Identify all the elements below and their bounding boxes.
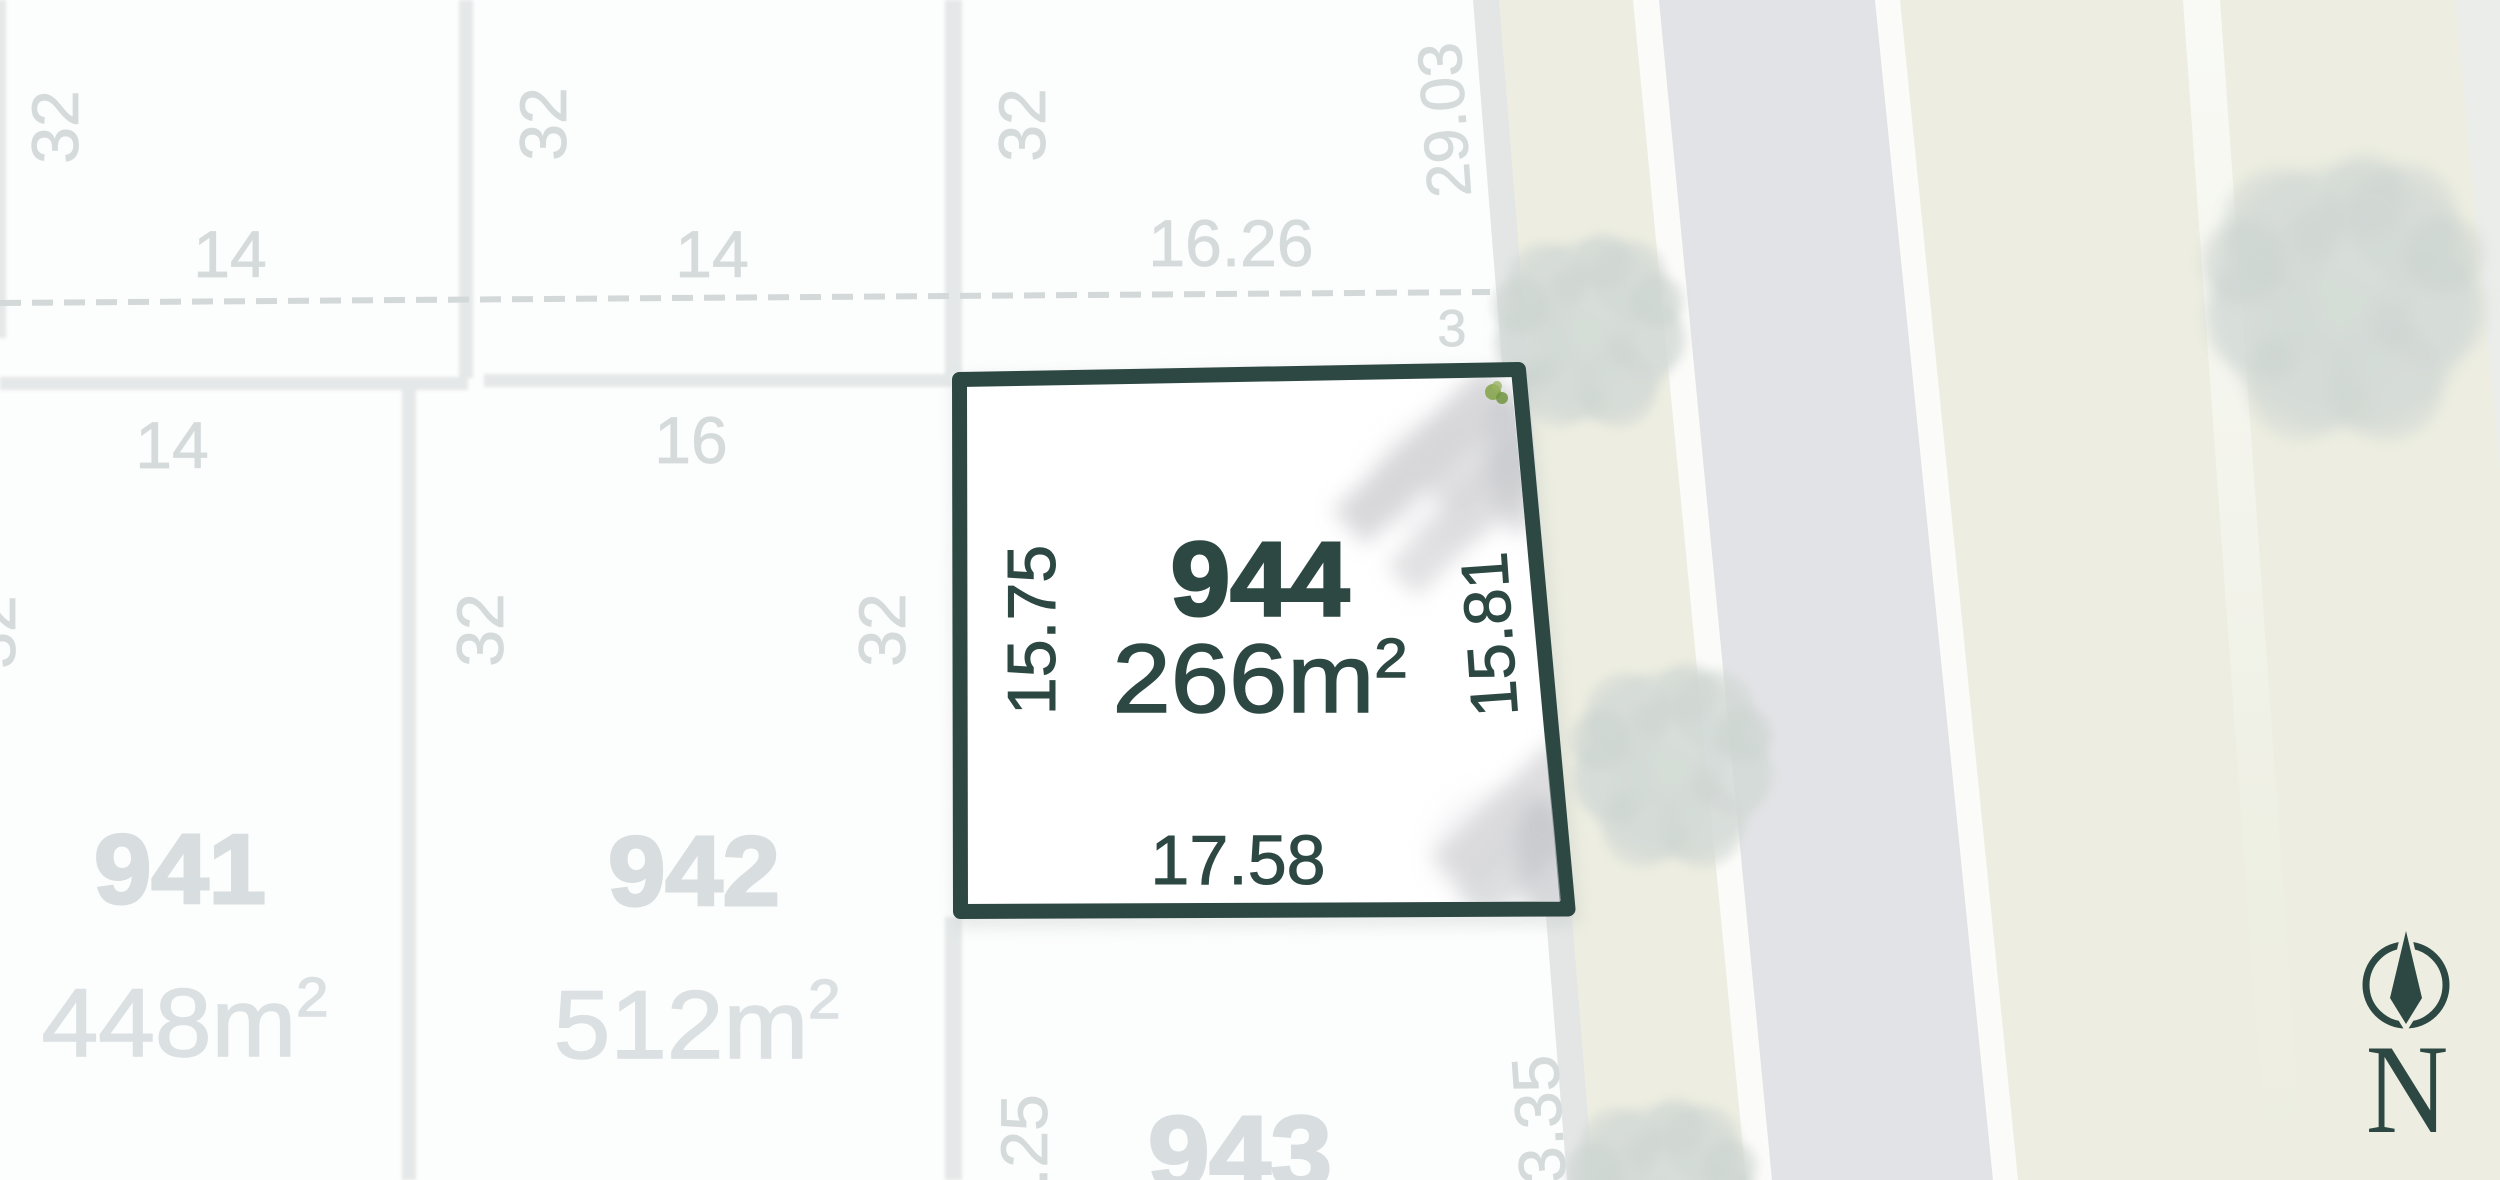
svg-text:32: 32 bbox=[506, 87, 580, 160]
svg-text:N: N bbox=[2366, 1020, 2449, 1161]
svg-text:512m2: 512m2 bbox=[554, 968, 841, 1079]
svg-text:32: 32 bbox=[443, 593, 517, 666]
svg-text:29.03: 29.03 bbox=[1405, 40, 1485, 200]
svg-text:942: 942 bbox=[608, 817, 780, 926]
svg-text:15.81: 15.81 bbox=[1446, 550, 1531, 720]
svg-text:266m2: 266m2 bbox=[1112, 626, 1407, 734]
svg-text:3: 3 bbox=[1438, 300, 1467, 358]
svg-text:32: 32 bbox=[0, 595, 29, 668]
svg-text:14: 14 bbox=[675, 217, 748, 291]
svg-text:17.58: 17.58 bbox=[1150, 821, 1325, 899]
svg-text:15.75: 15.75 bbox=[994, 545, 1070, 715]
svg-text:.25: .25 bbox=[987, 1094, 1061, 1180]
svg-text:16.26: 16.26 bbox=[1148, 206, 1313, 280]
svg-text:944: 944 bbox=[1171, 521, 1350, 638]
svg-text:32: 32 bbox=[985, 88, 1059, 161]
svg-text:14: 14 bbox=[193, 217, 266, 291]
svg-text:941: 941 bbox=[94, 815, 266, 924]
svg-text:16: 16 bbox=[654, 403, 727, 477]
svg-text:32: 32 bbox=[18, 90, 92, 163]
svg-text:14: 14 bbox=[135, 408, 208, 482]
svg-text:3.35: 3.35 bbox=[1497, 1053, 1580, 1180]
svg-text:32: 32 bbox=[845, 593, 919, 666]
svg-text:448m2: 448m2 bbox=[42, 966, 329, 1077]
svg-text:943: 943 bbox=[1148, 1094, 1332, 1180]
